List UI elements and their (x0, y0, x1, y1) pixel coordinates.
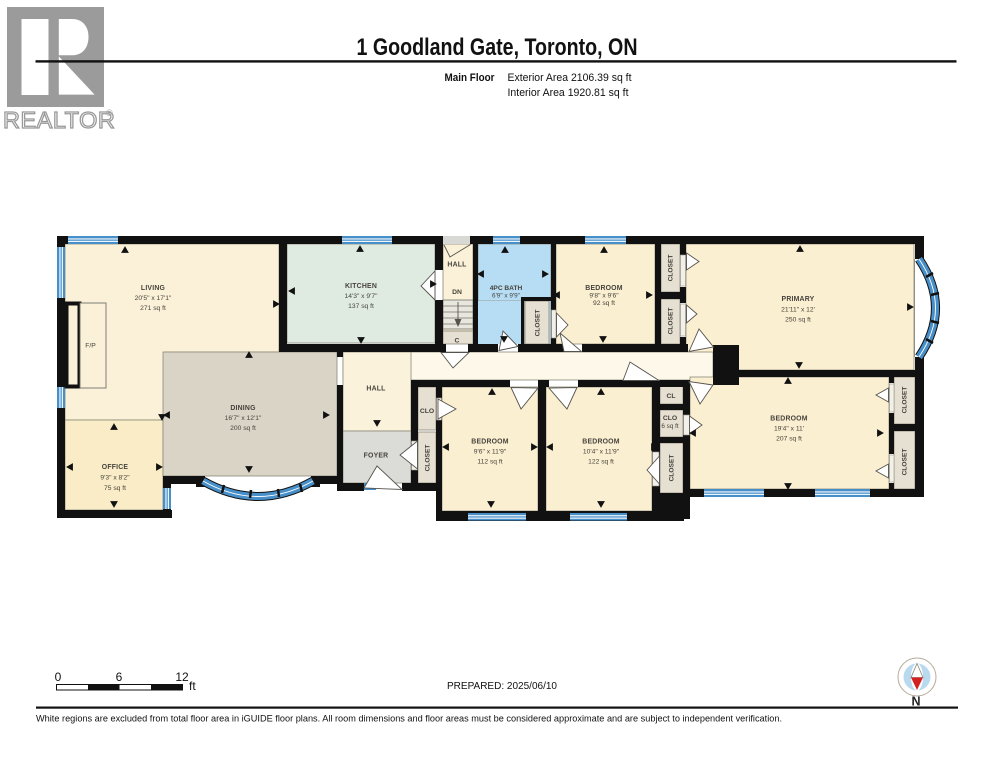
svg-text:DINING: DINING (230, 405, 255, 412)
svg-text:9'8" x 9'6": 9'8" x 9'6" (589, 293, 619, 300)
svg-text:N: N (911, 695, 920, 709)
svg-text:CLO: CLO (420, 408, 434, 415)
svg-text:112 sq ft: 112 sq ft (477, 459, 502, 466)
svg-text:OFFICE: OFFICE (102, 464, 129, 471)
svg-text:White regions are excluded fro: White regions are excluded from total fl… (36, 714, 782, 725)
svg-text:1 Goodland Gate, Toronto, ON: 1 Goodland Gate, Toronto, ON (357, 34, 638, 61)
svg-text:CLOSET: CLOSET (902, 449, 909, 476)
svg-text:PREPARED: 2025/06/10: PREPARED: 2025/06/10 (447, 680, 557, 692)
svg-text:9'6" x 11'9": 9'6" x 11'9" (474, 449, 507, 456)
svg-text:KITCHEN: KITCHEN (345, 283, 377, 290)
svg-text:21'11" x 12': 21'11" x 12' (781, 307, 815, 314)
svg-text:CLOSET: CLOSET (668, 255, 675, 282)
svg-text:CL: CL (666, 393, 675, 400)
svg-text:122 sq ft: 122 sq ft (588, 459, 614, 466)
svg-text:BEDROOM: BEDROOM (582, 439, 619, 446)
svg-text:207 sq ft: 207 sq ft (776, 436, 802, 443)
svg-text:PRIMARY: PRIMARY (782, 296, 815, 303)
svg-text:20'5" x 17'1": 20'5" x 17'1" (135, 295, 172, 302)
svg-text:BEDROOM: BEDROOM (471, 439, 508, 446)
svg-text:F/P: F/P (85, 343, 96, 350)
svg-text:6: 6 (116, 670, 123, 684)
svg-text:9'3" x 8'2": 9'3" x 8'2" (100, 475, 130, 482)
svg-text:0: 0 (55, 670, 62, 684)
svg-text:92 sq ft: 92 sq ft (593, 300, 615, 307)
svg-text:C: C (455, 338, 460, 345)
svg-text:CLO: CLO (663, 415, 677, 422)
svg-text:200 sq ft: 200 sq ft (230, 425, 256, 432)
svg-text:CLOSET: CLOSET (902, 387, 909, 414)
svg-text:BEDROOM: BEDROOM (585, 285, 622, 292)
svg-text:BEDROOM: BEDROOM (770, 416, 807, 423)
svg-text:CLOSET: CLOSET (535, 310, 542, 337)
svg-text:250 sq ft: 250 sq ft (785, 317, 811, 324)
svg-text:6 sq ft: 6 sq ft (661, 423, 678, 430)
svg-text:CLOSET: CLOSET (668, 308, 675, 335)
svg-text:LIVING: LIVING (141, 285, 165, 292)
svg-text:4PC BATH: 4PC BATH (490, 285, 523, 292)
svg-text:16'7" x 12'1": 16'7" x 12'1" (225, 415, 262, 422)
svg-text:CLOSET: CLOSET (425, 445, 432, 472)
svg-text:REALTOR: REALTOR (3, 107, 115, 133)
svg-text:12: 12 (175, 670, 189, 684)
svg-text:DN: DN (452, 289, 462, 296)
svg-text:HALL: HALL (447, 262, 466, 269)
svg-text:HALL: HALL (366, 386, 385, 393)
svg-text:19'4" x 11': 19'4" x 11' (774, 426, 804, 433)
svg-text:14'3" x 9'7": 14'3" x 9'7" (345, 293, 379, 300)
svg-text:Exterior Area 2106.39 sq ft: Exterior Area 2106.39 sq ft (508, 72, 632, 84)
svg-text:CLOSET: CLOSET (669, 455, 676, 482)
svg-text:Main Floor: Main Floor (445, 72, 496, 84)
svg-text:ft: ft (189, 679, 196, 693)
svg-text:10'4" x 11'9": 10'4" x 11'9" (583, 449, 620, 456)
svg-text:137 sq ft: 137 sq ft (348, 303, 374, 310)
svg-text:271 sq ft: 271 sq ft (140, 305, 166, 312)
svg-text:Interior Area 1920.81 sq ft: Interior Area 1920.81 sq ft (508, 87, 629, 99)
svg-text:6'9" x 9'9": 6'9" x 9'9" (492, 293, 520, 300)
svg-text:®: ® (106, 108, 113, 118)
svg-text:FOYER: FOYER (364, 453, 389, 460)
svg-text:75 sq ft: 75 sq ft (104, 485, 126, 492)
